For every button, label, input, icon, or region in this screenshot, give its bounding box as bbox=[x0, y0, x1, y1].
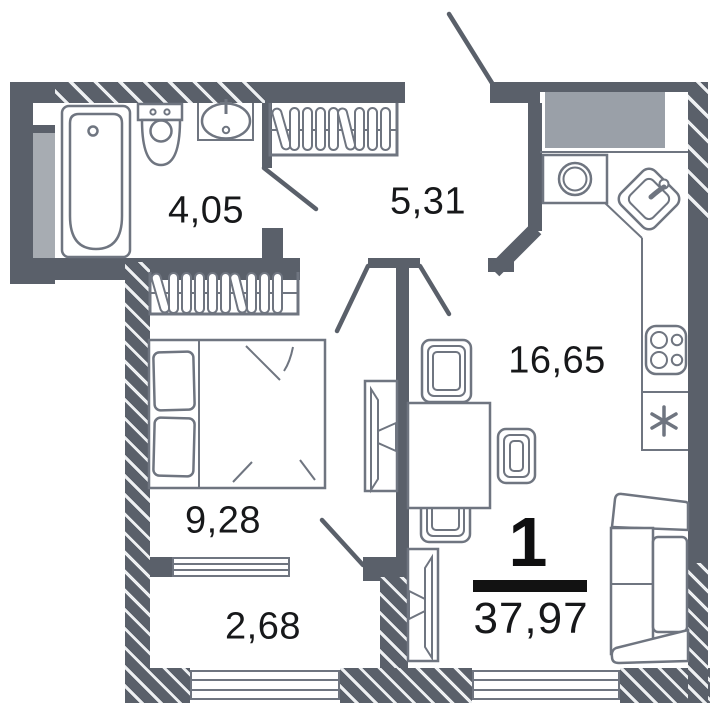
room-label-bathroom: 4,05 bbox=[168, 190, 244, 233]
hallway-wardrobe-icon bbox=[270, 103, 397, 155]
stove-icon bbox=[646, 326, 686, 374]
room-label-kitchen-living: 16,65 bbox=[508, 340, 606, 383]
total-area-divider bbox=[473, 580, 587, 592]
chair-top-icon bbox=[422, 340, 471, 402]
sofa-icon bbox=[611, 494, 688, 663]
balcony-door-swing-icon bbox=[322, 520, 363, 565]
chair-right-icon bbox=[498, 429, 535, 483]
floor-plan: 4,05 5,31 16,65 9,28 2,68 1 37,97 bbox=[0, 0, 720, 720]
unit-rooms-count: 1 bbox=[509, 502, 548, 582]
bedroom-wardrobe-icon bbox=[150, 272, 298, 314]
dining-table-icon bbox=[408, 403, 490, 508]
room-label-bedroom: 9,28 bbox=[185, 500, 261, 543]
bathroom-door-swing-icon bbox=[264, 168, 316, 209]
bed-icon bbox=[149, 340, 325, 488]
unit-total-area: 37,97 bbox=[473, 594, 588, 644]
fixtures-layer bbox=[0, 0, 720, 720]
room-label-hallway: 5,31 bbox=[390, 181, 466, 224]
fridge-asterisk-icon bbox=[652, 407, 676, 435]
bedroom-door-swing-icon bbox=[337, 266, 368, 331]
bathtub-icon bbox=[62, 106, 130, 257]
tv-bedroom-icon bbox=[365, 381, 397, 491]
bathroom-sink-icon bbox=[198, 99, 253, 140]
living-door-swing-icon bbox=[420, 266, 449, 314]
tv-living-icon bbox=[408, 549, 438, 661]
washing-machine-icon bbox=[543, 155, 607, 203]
room-label-balcony: 2,68 bbox=[225, 606, 301, 649]
wall-chamfer bbox=[494, 229, 536, 271]
toilet-icon bbox=[138, 104, 182, 165]
entrance-door-swing-icon bbox=[449, 14, 492, 83]
